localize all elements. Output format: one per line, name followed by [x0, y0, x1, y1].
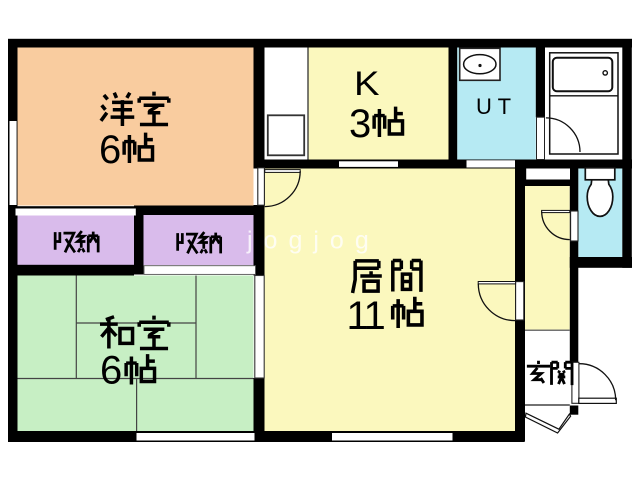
svg-text:6: 6: [99, 128, 121, 172]
svg-text:U T: U T: [476, 94, 511, 119]
svg-text:11: 11: [347, 294, 386, 338]
svg-text:K: K: [354, 65, 380, 103]
svg-text:jogjog: jogjog: [246, 227, 380, 255]
svg-text:6: 6: [100, 349, 122, 393]
svg-text:3: 3: [349, 102, 371, 146]
